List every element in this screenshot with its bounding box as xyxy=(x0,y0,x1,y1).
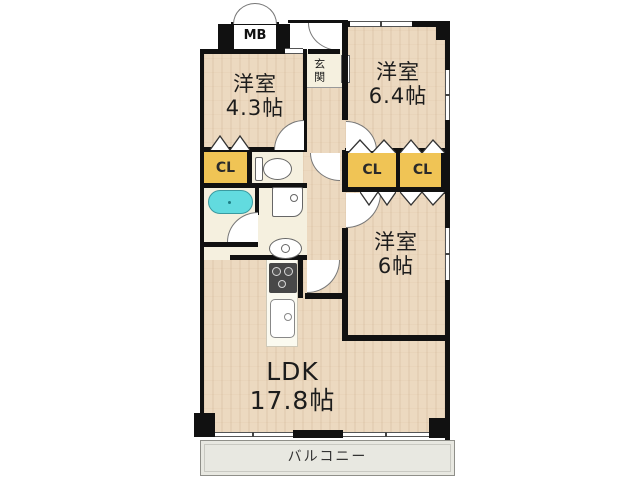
room-size: 17.8帖 xyxy=(240,387,345,416)
gas-stove xyxy=(269,263,297,293)
room-name: LDK xyxy=(240,358,345,387)
meter-box-door-right-arc xyxy=(255,3,277,24)
wall-cl-toilet-divider xyxy=(247,152,252,183)
toilet-tank xyxy=(255,157,263,181)
bathtub-drain xyxy=(228,201,231,204)
room-4-3-label: 洋室 4.3帖 xyxy=(205,72,305,120)
room-6-label: 洋室 6帖 xyxy=(346,230,446,278)
pillar-bottom-right xyxy=(429,418,450,438)
pillar-top-right xyxy=(436,21,450,40)
wall-bath-bottom xyxy=(203,242,258,247)
folding-door-icon xyxy=(400,192,445,206)
balcony-label: バルコニー xyxy=(255,449,400,465)
wall-room6-bottom xyxy=(342,335,450,341)
ldk-label: LDK 17.8帖 xyxy=(240,358,345,416)
window-tick xyxy=(385,432,387,437)
vanity-faucet xyxy=(290,194,298,202)
wall-bath-right-upper xyxy=(255,187,259,215)
pillar-bottom-left xyxy=(194,413,215,437)
window-tick xyxy=(380,21,382,27)
meter-box: MB xyxy=(231,22,279,52)
vanity-unit xyxy=(272,187,303,217)
closet-1-label: CL xyxy=(204,160,247,176)
folding-door-icon xyxy=(210,135,250,150)
toilet-bowl xyxy=(263,158,292,180)
room-name: 洋室 xyxy=(348,60,448,84)
closet-3-label: CL xyxy=(400,162,445,178)
kitchen-faucet xyxy=(284,313,292,321)
window-ldk-balcony-left xyxy=(215,432,293,437)
room-size: 6.4帖 xyxy=(348,84,448,108)
folding-door-icon xyxy=(348,139,396,153)
meter-box-label: MB xyxy=(234,29,276,44)
room-name: 洋室 xyxy=(346,230,446,254)
window-room43-top xyxy=(285,48,303,54)
room-size: 6帖 xyxy=(346,254,446,278)
door-leaf-ldk xyxy=(305,293,342,299)
closet-2-label: CL xyxy=(348,162,396,178)
room-6-4-label: 洋室 6.4帖 xyxy=(348,60,448,108)
meter-box-door-left-arc xyxy=(233,3,255,24)
entrance-label: 玄関 xyxy=(312,56,325,86)
room-size: 4.3帖 xyxy=(205,96,305,120)
floor-plan: MB 玄関 洋室 4.3帖 洋室 6.4帖 洋室 6帖 xyxy=(0,0,640,480)
wall-kitchen-right xyxy=(298,258,303,298)
room-name: 洋室 xyxy=(205,72,305,96)
washbasin-drain xyxy=(281,244,290,253)
folding-door-icon xyxy=(360,192,396,206)
window-tick xyxy=(252,432,254,437)
folding-door-icon xyxy=(400,139,445,153)
wall-ldk-bottom-center xyxy=(293,430,343,438)
entrance-door-leaf xyxy=(308,49,340,54)
